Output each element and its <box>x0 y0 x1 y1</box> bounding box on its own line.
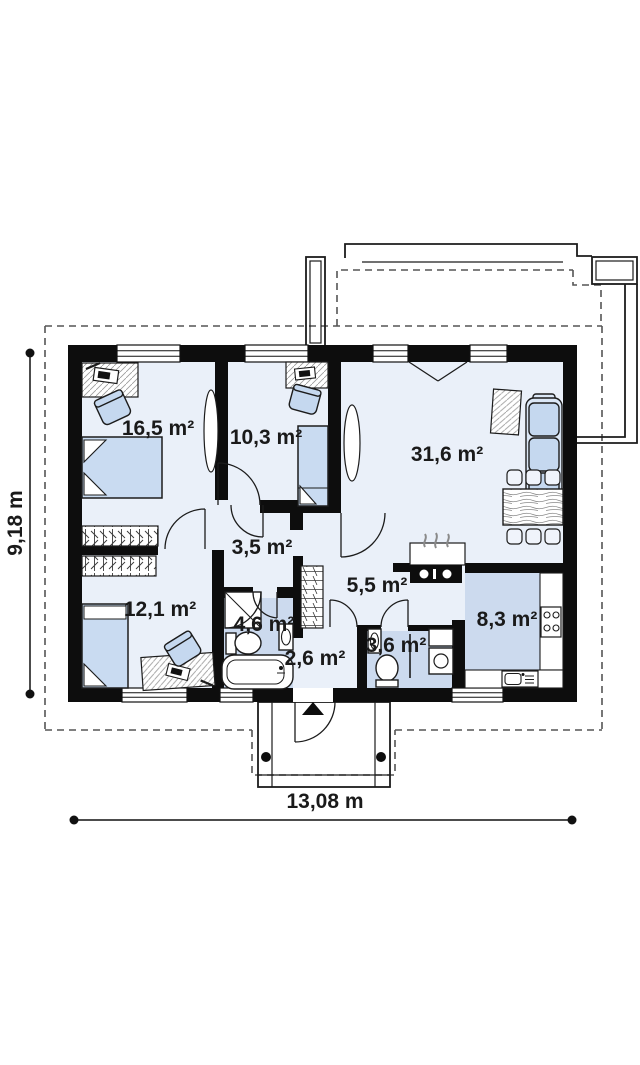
coffee-table <box>490 389 521 435</box>
dimension-dot <box>26 690 35 699</box>
porch <box>258 702 390 787</box>
porch-inner-lines <box>258 702 390 787</box>
terrace-column-left <box>306 257 325 347</box>
dimension-label-height: 9,18 m <box>4 490 27 555</box>
dimension-label-width: 13,08 m <box>286 790 363 813</box>
pillow <box>84 606 126 619</box>
room-label-corridor: 5,5 m² <box>347 574 408 597</box>
porch-outline <box>258 702 390 787</box>
room-label-wc: 3,6 m² <box>366 634 427 657</box>
bathtub <box>222 655 293 689</box>
floor-plan-drawing: 16,5 m² 10,3 m² 31,6 m² 3,5 m² 12,1 m² 4… <box>0 0 640 1065</box>
room-label-kitchen: 8,3 m² <box>477 608 538 631</box>
door-leaf-panel <box>204 390 218 472</box>
wall-wc-kitchen <box>452 620 465 688</box>
dimension-dot <box>26 349 35 358</box>
wall-kitchen-top <box>465 563 563 573</box>
wall-outer-left <box>68 345 82 702</box>
porch-column-dot-right <box>376 752 386 762</box>
entrance-arrow <box>302 702 324 715</box>
toilet <box>376 655 398 687</box>
floors <box>82 362 563 688</box>
window-kitchen <box>452 688 503 702</box>
door-leaf-panel <box>344 405 360 481</box>
wall-outer-right <box>563 345 577 702</box>
laptop <box>295 367 316 380</box>
window-living-left <box>373 345 408 362</box>
wall-bed1-bed3 <box>82 546 158 555</box>
fireplace-box <box>410 543 465 565</box>
room-label-hall: 3,5 m² <box>232 536 293 559</box>
counter <box>429 629 453 646</box>
dining-table <box>503 489 563 525</box>
room-label-entrance: 2,6 m² <box>285 647 346 670</box>
wardrobe <box>82 526 158 546</box>
wall-bed2-living <box>328 362 341 513</box>
window-bedroom2 <box>245 345 308 362</box>
window-living-right <box>470 345 507 362</box>
fireplace-dot <box>443 570 452 579</box>
window-bedroom1 <box>117 345 180 362</box>
entrance-door-opening <box>293 688 333 702</box>
window-bathroom <box>220 688 253 702</box>
laptop <box>93 367 119 383</box>
terrace-side-outline <box>577 284 637 443</box>
room-label-bedroom-1: 16,5 m² <box>122 417 194 440</box>
terrace-column-right-inner <box>596 261 633 280</box>
wardrobe <box>82 556 156 576</box>
porch-column-dot-left <box>261 752 271 762</box>
kitchen-sink <box>502 671 538 687</box>
dimension-horizontal: 13,08 m <box>70 790 577 825</box>
dimension-dot <box>70 816 79 825</box>
cooktop <box>541 607 561 637</box>
fireplace-tick <box>433 569 436 579</box>
coat-wardrobe <box>301 566 323 628</box>
dimension-vertical: 9,18 m <box>4 349 35 699</box>
room-label-bedroom-3: 12,1 m² <box>124 598 196 621</box>
wall-hall-stub <box>290 513 303 530</box>
room-label-bedroom-2: 10,3 m² <box>230 426 302 449</box>
washing-machine <box>429 648 453 674</box>
dimension-dot <box>568 816 577 825</box>
room-label-living-room: 31,6 m² <box>411 443 483 466</box>
fireplace-dot <box>420 570 429 579</box>
terrace-column-left-inner <box>310 261 321 343</box>
terrace-outline <box>345 244 592 258</box>
room-label-bathroom: 4,6 m² <box>234 613 295 636</box>
floor-plan-page: 16,5 m² 10,3 m² 31,6 m² 3,5 m² 12,1 m² 4… <box>0 0 640 1065</box>
